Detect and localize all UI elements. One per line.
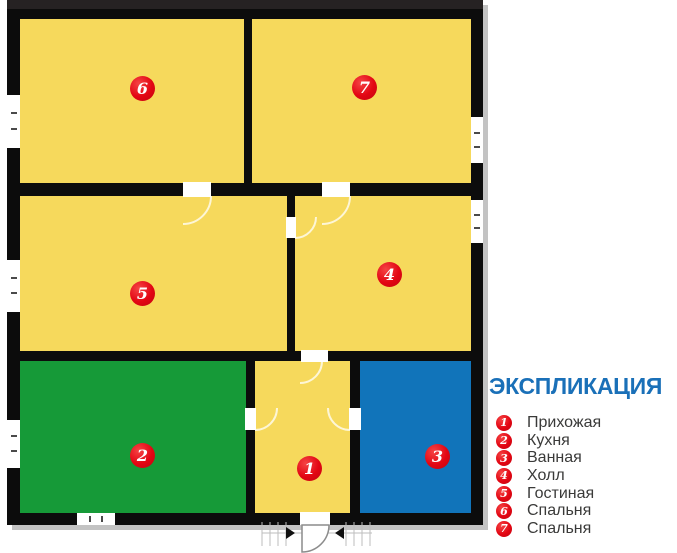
entrance-door-swing bbox=[302, 525, 329, 552]
room-2-badge: 2 bbox=[130, 443, 155, 468]
room-1-badge: 1 bbox=[297, 456, 322, 481]
legend-item-label: Гостиная bbox=[527, 486, 594, 502]
legend-item-badge: 1 bbox=[496, 415, 512, 431]
window-left-1 bbox=[7, 95, 20, 148]
entrance-arrow-left-icon bbox=[286, 527, 295, 539]
room-4-badge: 4 bbox=[377, 262, 402, 287]
porch-lines bbox=[262, 522, 372, 546]
legend-item: 1 Прихожая bbox=[489, 414, 677, 432]
room-2-kitchen: 2 bbox=[20, 361, 246, 513]
room-6-badge: 6 bbox=[130, 76, 155, 101]
window-right-1 bbox=[471, 117, 483, 163]
window-right-2 bbox=[471, 200, 483, 243]
legend-item: 7 Спальня bbox=[489, 520, 677, 538]
door-opening-7-4 bbox=[322, 182, 350, 197]
door-opening-1-3 bbox=[349, 408, 361, 430]
legend-item-label: Холл bbox=[527, 468, 565, 484]
top-wall-shade bbox=[7, 0, 483, 9]
window-left-2 bbox=[7, 260, 20, 312]
legend-item-label: Спальня bbox=[527, 521, 591, 537]
floor-plan-page: 6 7 5 4 2 1 3 bbox=[0, 0, 677, 553]
legend-item-badge: 6 bbox=[496, 503, 512, 519]
window-left-3 bbox=[7, 420, 20, 468]
legend-item: 3 Ванная bbox=[489, 449, 677, 467]
legend-item-label: Спальня bbox=[527, 503, 591, 519]
legend-item-label: Кухня bbox=[527, 433, 570, 449]
legend-item-badge: 7 bbox=[496, 521, 512, 537]
legend-item: 4 Холл bbox=[489, 467, 677, 485]
door-opening-6-5 bbox=[183, 182, 211, 197]
door-opening-2-1 bbox=[245, 408, 256, 430]
room-3-bathroom: 3 bbox=[360, 361, 471, 513]
room-7-bedroom: 7 bbox=[252, 19, 471, 183]
entrance-arrow-right-icon bbox=[335, 527, 344, 539]
floor-plan: 6 7 5 4 2 1 3 bbox=[7, 0, 483, 525]
legend-item-badge: 2 bbox=[496, 433, 512, 449]
room-7-badge: 7 bbox=[352, 75, 377, 100]
room-3-badge: 3 bbox=[425, 444, 450, 469]
room-6-bedroom: 6 bbox=[20, 19, 244, 183]
door-opening-4-1 bbox=[301, 350, 328, 362]
legend-item-badge: 5 bbox=[496, 486, 512, 502]
legend-item: 5 Гостиная bbox=[489, 485, 677, 503]
window-bottom-1 bbox=[77, 513, 115, 525]
room-5-living-room: 5 bbox=[20, 196, 287, 351]
door-opening-5-4 bbox=[286, 217, 296, 238]
legend: ЭКСПЛИКАЦИЯ 1 Прихожая 2 Кухня 3 Ванная … bbox=[489, 370, 677, 538]
legend-item-badge: 3 bbox=[496, 450, 512, 466]
legend-item-label: Прихожая bbox=[527, 415, 601, 431]
legend-item-badge: 4 bbox=[496, 468, 512, 484]
legend-title: ЭКСПЛИКАЦИЯ bbox=[489, 370, 677, 399]
room-4-hall: 4 bbox=[295, 196, 471, 351]
legend-item: 2 Кухня bbox=[489, 432, 677, 450]
legend-item-label: Ванная bbox=[527, 450, 582, 466]
room-1-entry-hall: 1 bbox=[255, 361, 350, 513]
room-5-badge: 5 bbox=[130, 281, 155, 306]
entrance-door-opening bbox=[300, 512, 330, 525]
legend-item: 6 Спальня bbox=[489, 502, 677, 520]
